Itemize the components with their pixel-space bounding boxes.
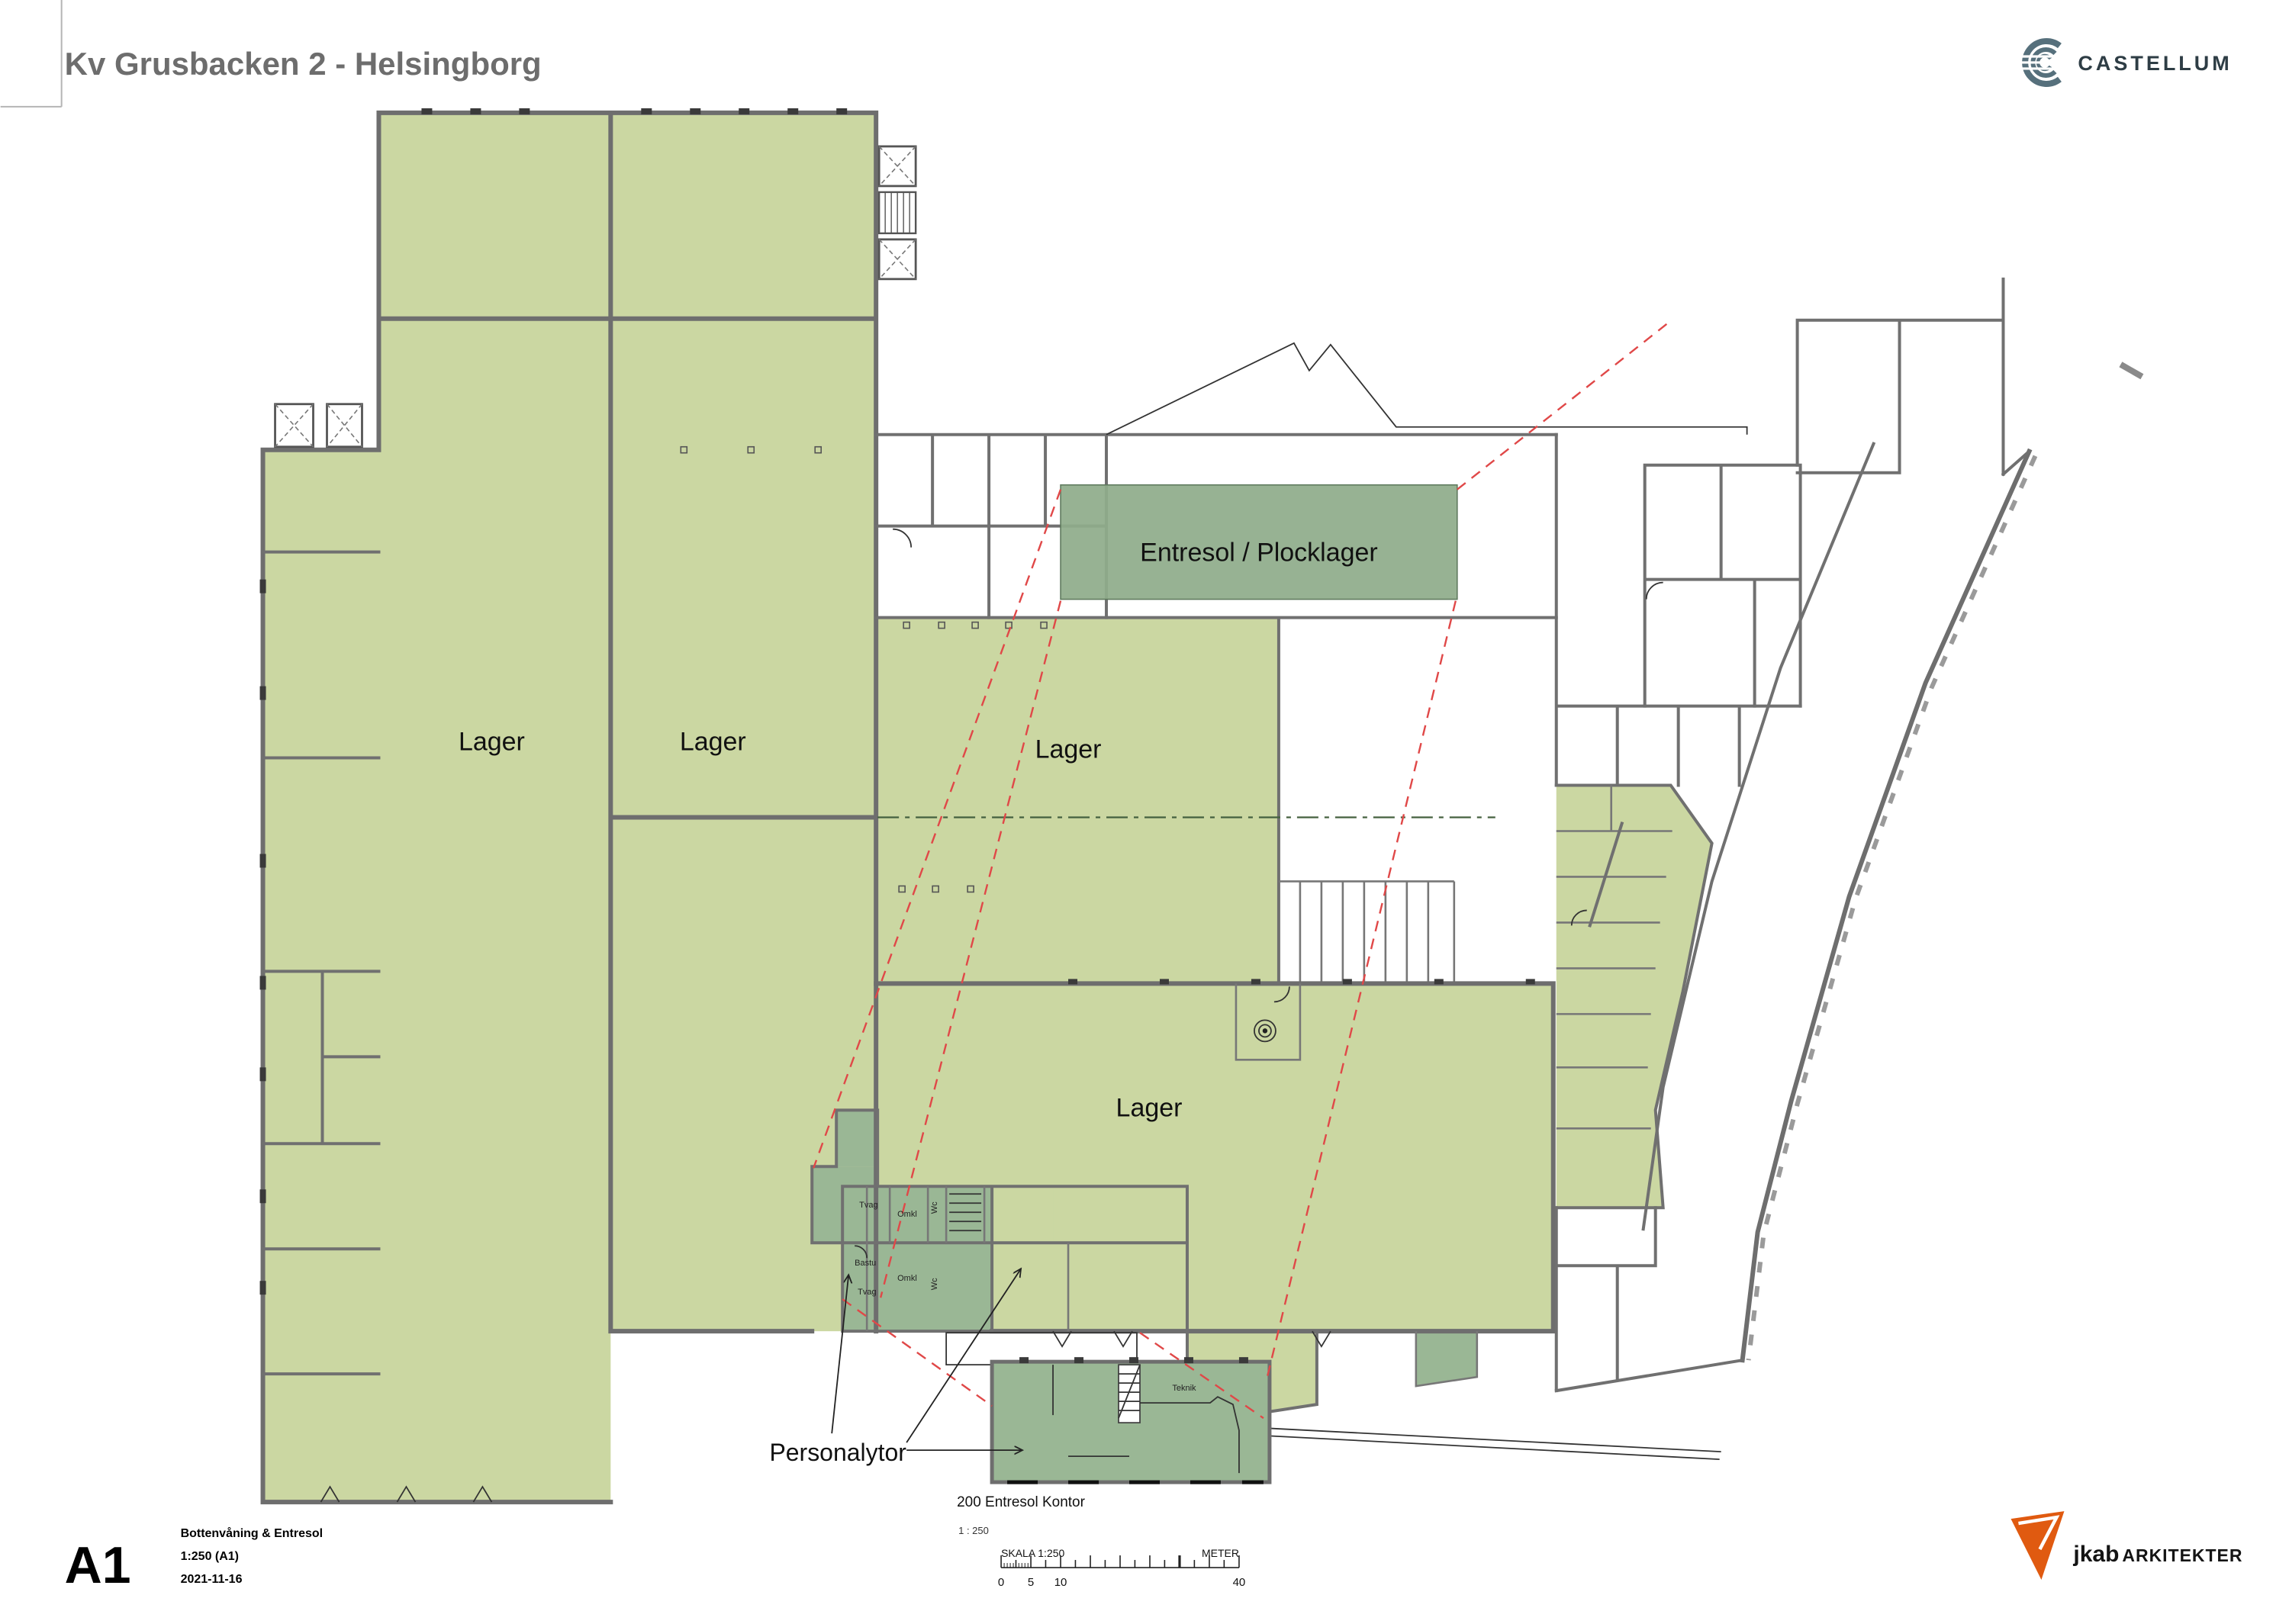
stair-elevator-core-icon (879, 146, 916, 279)
warehouse-areas (263, 113, 1712, 1502)
entresol-detail-building (992, 1357, 1270, 1482)
detail-title: 200 Entresol Kontor (957, 1494, 1085, 1510)
scale-bar-unit: METER (1202, 1547, 1239, 1559)
wc-2-label: Wc (930, 1278, 939, 1290)
personalytor-label: Personalytor (769, 1439, 906, 1466)
entresol-label: Entresol / Plocklager (1140, 539, 1378, 568)
scale-tick-5: 5 (1028, 1576, 1034, 1589)
staff-light-room-a (992, 1243, 1187, 1331)
page-frame (1, 0, 62, 107)
scale-bar-label: SKALA 1:250 (1001, 1547, 1064, 1559)
castellum-wordmark: CASTELLUM (2078, 52, 2232, 75)
tvag-1-label: Tvag (859, 1201, 877, 1210)
page-title: Kv Grusbacken 2 - Helsingborg (65, 46, 542, 82)
detail-caption: 200 Entresol Kontor 1 : 250 (957, 1494, 1085, 1536)
castellum-logo: CASTELLUM (2018, 41, 2232, 84)
sheet-size: A1 (65, 1536, 131, 1594)
staff-light-room-b (1053, 1186, 1187, 1243)
scale-tick-40: 40 (1233, 1576, 1246, 1589)
canopy-outline (1106, 343, 1747, 435)
omkl-2-label: Omkl (897, 1274, 917, 1283)
staff-dark-block-top (836, 1110, 877, 1166)
teknik-label: Teknik (1172, 1384, 1196, 1393)
title-block-line1: Bottenvåning & Entresol (181, 1526, 324, 1540)
curve-wing-green-area (1557, 786, 1712, 1208)
omkl-1-label: Omkl (897, 1210, 917, 1219)
scale-bar: SKALA 1:250 METER 0 5 10 40 (998, 1547, 1245, 1589)
lager-1-label: Lager (459, 728, 525, 757)
lager-3-area (876, 618, 1279, 984)
lager-1-area (263, 113, 611, 1502)
dock-shaft-icon (275, 404, 362, 447)
detail-scale: 1 : 250 (958, 1525, 989, 1536)
castellum-icon (2018, 41, 2059, 84)
title-block: A1 Bottenvåning & Entresol 1:250 (A1) 20… (65, 1526, 323, 1594)
title-block-line3: 2021-11-16 (181, 1573, 243, 1586)
title-block-line2: 1:250 (A1) (181, 1550, 239, 1563)
lager-3-label: Lager (1035, 735, 1102, 764)
bastu-label: Bastu (855, 1259, 876, 1268)
jkab-suffix: ARKITEKTER (2122, 1545, 2242, 1565)
jkab-wordmark: jkab (2072, 1542, 2119, 1567)
jkab-logo: jkab ARKITEKTER (2011, 1511, 2242, 1580)
lager-4-label: Lager (1116, 1093, 1183, 1122)
wc-1-label: Wc (930, 1201, 939, 1214)
tvag-2-label: Tvag (858, 1288, 876, 1297)
floorplan-sheet: Lager Lager Lager Lager Entresol / Plock… (0, 0, 2289, 1624)
scale-tick-0: 0 (998, 1576, 1004, 1589)
lager-2-label: Lager (680, 728, 746, 757)
scale-tick-10: 10 (1054, 1576, 1067, 1589)
